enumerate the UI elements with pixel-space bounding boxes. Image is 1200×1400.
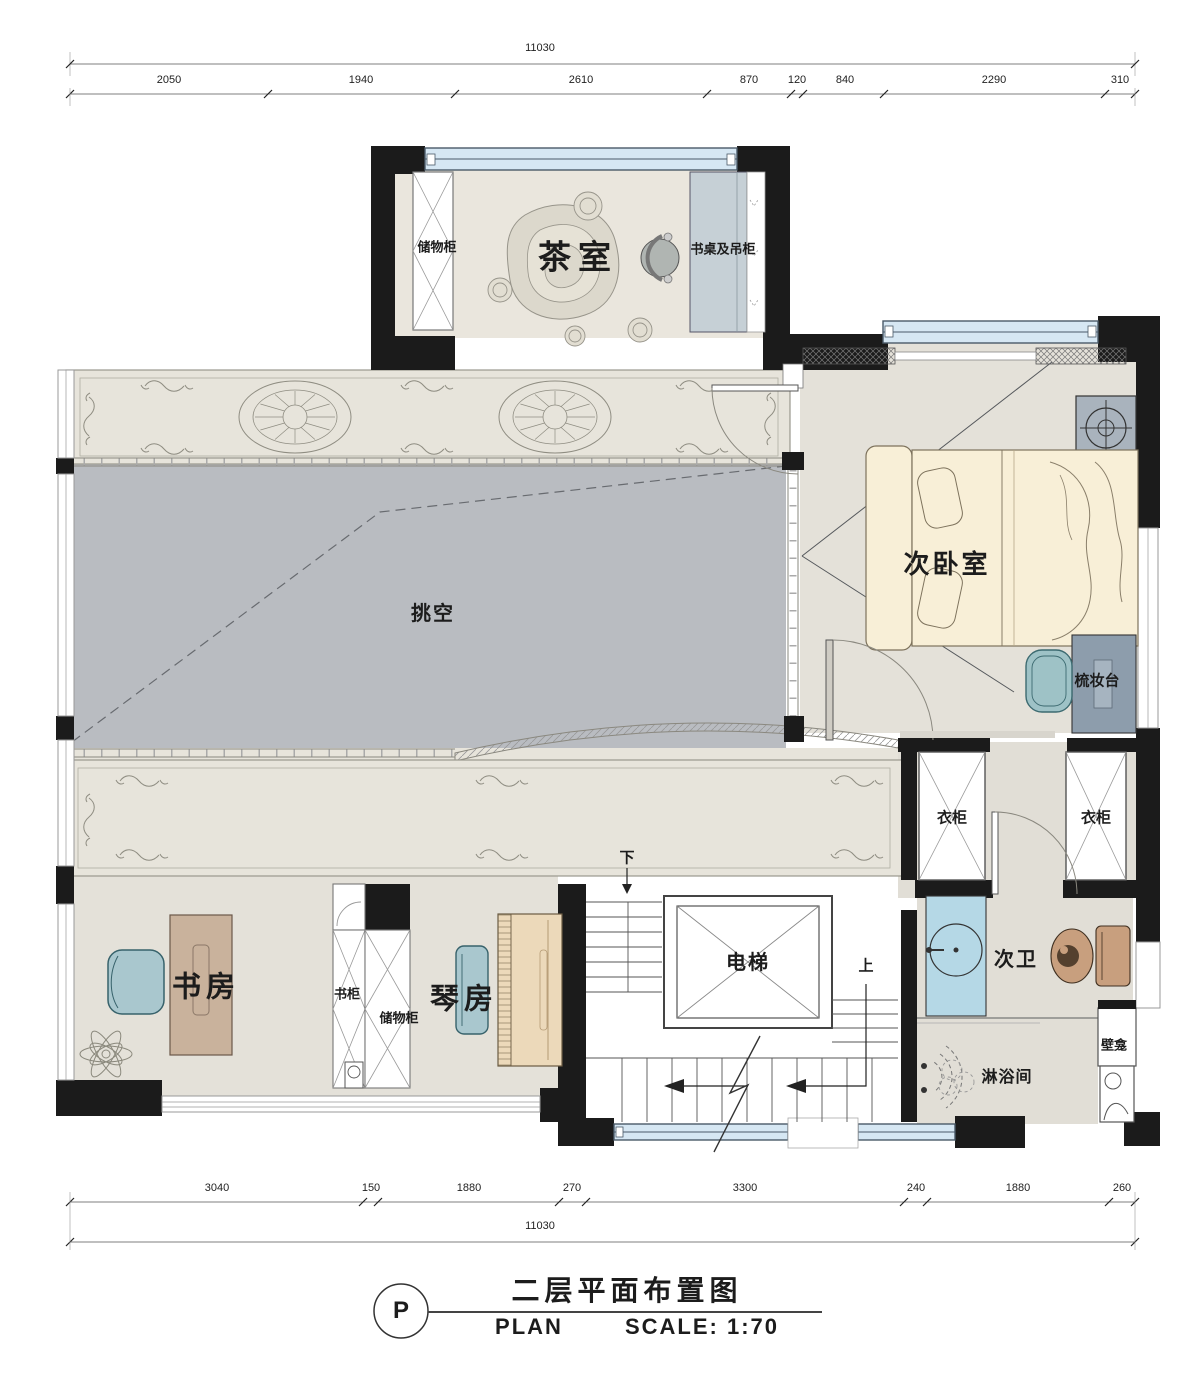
label-tea-room: 茶室 [538,241,618,274]
label-shower: 淋浴间 [981,1070,1032,1086]
plan-title-en: PLAN [495,1316,563,1338]
label-storage-top: 储物柜 [417,241,456,254]
gallery-band-top [66,370,790,466]
void-right-railing [788,470,798,716]
dim-top-1: 1940 [349,74,373,86]
dim-top-2: 2610 [569,74,593,86]
dim-top-7: 310 [1111,74,1129,86]
dim-bot-7: 260 [1113,1182,1131,1194]
label-study: 书房 [172,974,240,1003]
dim-top-3: 870 [740,74,758,86]
label-stairs-up: 上 [858,959,873,974]
label-wardrobe-b: 衣柜 [1081,811,1111,826]
dim-top-4: 120 [788,74,806,86]
dim-bot-0: 3040 [205,1182,229,1194]
dim-bot-2: 1880 [457,1182,481,1194]
label-stairs-down: 下 [619,851,634,866]
label-niche: 壁龛 [1101,1039,1127,1052]
label-desk-hanging: 书桌及吊柜 [690,243,755,256]
plan-marker: P [393,1299,409,1323]
dim-top-5: 840 [836,74,854,86]
label-elevator: 电梯 [726,953,770,973]
label-piano: 琴房 [430,986,498,1015]
floor-plan-sheet: 储物柜 茶室 书桌及吊柜 次卧室 挑空 梳妆台 衣柜 衣柜 书房 书柜 储物柜 … [0,0,1200,1400]
plan-title-cn: 二层平面布置图 [511,1277,742,1305]
dim-top-0: 2050 [157,74,181,86]
label-storage-study: 储物柜 [379,1012,418,1025]
dim-bot-3: 270 [563,1182,581,1194]
label-bedroom: 次卧室 [903,551,990,577]
label-void: 挑空 [411,604,455,624]
dim-bottom-total: 11030 [525,1220,555,1232]
plan-scale: SCALE: 1:70 [625,1316,779,1338]
dim-bot-6: 1880 [1006,1182,1030,1194]
label-bath: 次卫 [994,950,1038,970]
label-wardrobe-a: 衣柜 [937,811,967,826]
dim-top-total: 11030 [525,42,555,54]
dim-bot-4: 3300 [733,1182,757,1194]
door-frame-notch [783,364,803,388]
label-bookcase: 书柜 [334,988,360,1001]
label-dresser: 梳妆台 [1074,674,1119,689]
dim-bot-5: 240 [907,1182,925,1194]
dim-top-6: 2290 [982,74,1006,86]
dim-bot-1: 150 [362,1182,380,1194]
